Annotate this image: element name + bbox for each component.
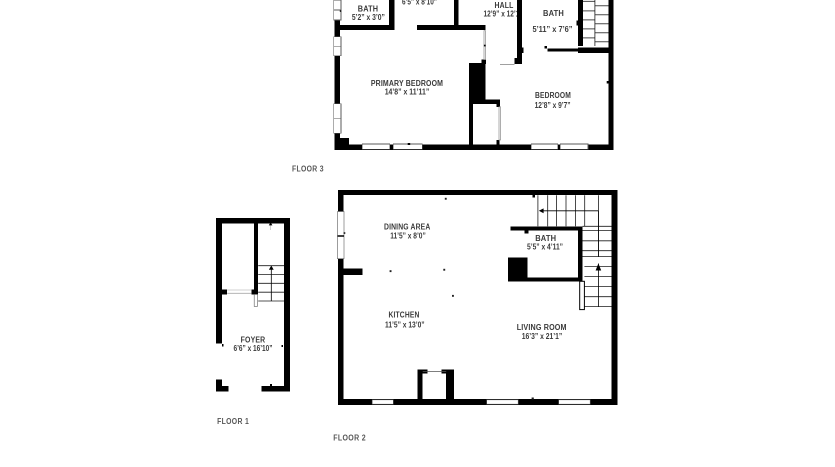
svg-text:11’5” x 13’0”: 11’5” x 13’0”	[385, 321, 425, 330]
svg-text:FLOOR 2: FLOOR 2	[333, 433, 366, 443]
svg-text:16’3” x 21’1”: 16’3” x 21’1”	[522, 332, 563, 341]
svg-text:BEDROOM: BEDROOM	[535, 90, 571, 100]
svg-text:FLOOR 3: FLOOR 3	[292, 164, 324, 174]
svg-text:6’5” x 8’10”: 6’5” x 8’10”	[402, 0, 437, 7]
svg-text:5’5” x 4’11”: 5’5” x 4’11”	[527, 242, 563, 251]
svg-text:5’2” x 3’0”: 5’2” x 3’0”	[352, 13, 385, 22]
svg-text:14’8” x 11’11”: 14’8” x 11’11”	[385, 88, 430, 97]
svg-text:BATH: BATH	[543, 8, 564, 18]
svg-text:PRIMARY BEDROOM: PRIMARY BEDROOM	[371, 78, 443, 88]
svg-text:12’8” x 9’7”: 12’8” x 9’7”	[535, 101, 571, 110]
svg-text:FLOOR 1: FLOOR 1	[217, 416, 249, 426]
svg-text:11’5” x 8’0”: 11’5” x 8’0”	[390, 231, 426, 240]
svg-text:DINING AREA: DINING AREA	[384, 222, 431, 232]
svg-text:12’9” x 12’1”: 12’9” x 12’1”	[484, 10, 523, 19]
svg-text:LIVING ROOM: LIVING ROOM	[517, 322, 567, 332]
svg-text:5’11” x 7’6”: 5’11” x 7’6”	[533, 25, 573, 34]
svg-text:KITCHEN: KITCHEN	[389, 310, 420, 320]
svg-text:6’6” x 16’10”: 6’6” x 16’10”	[234, 344, 273, 353]
